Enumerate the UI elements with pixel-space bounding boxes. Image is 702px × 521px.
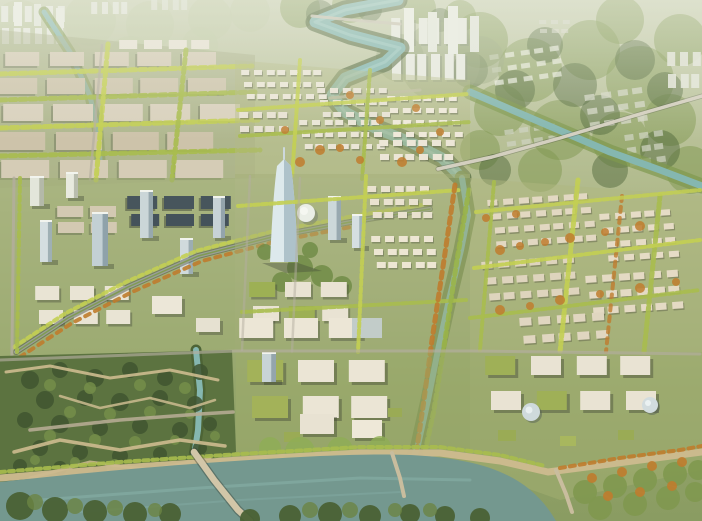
campus-east (580, 391, 610, 410)
residential-north (379, 140, 388, 146)
residential-east (550, 273, 561, 281)
autumn-trees-east (495, 305, 505, 315)
residential-east (524, 225, 534, 232)
park-trees-light (179, 382, 191, 394)
residential-east (619, 273, 630, 281)
residential-center (409, 199, 418, 205)
autumn-trees (356, 156, 364, 164)
midrise-blocks (249, 282, 275, 297)
office-tower-side (149, 190, 153, 238)
residential-north (393, 140, 402, 146)
central-green (302, 242, 318, 258)
riverbank-trees-light (302, 502, 318, 518)
residential-north (328, 144, 336, 149)
campus-center (252, 396, 288, 418)
campus-east (485, 356, 515, 375)
green-roof (388, 408, 402, 417)
office-tower-roof (140, 190, 153, 192)
tan-roofs (57, 206, 83, 217)
residential-east (489, 293, 500, 301)
far-buildings (641, 145, 651, 152)
riverbank-trees-light (148, 503, 162, 517)
green-roof (618, 430, 634, 440)
residential-north (419, 154, 428, 160)
residential-center (406, 186, 415, 192)
residential-east (537, 289, 548, 297)
riverbank-trees-light (67, 498, 83, 514)
residential-center (413, 249, 422, 255)
campus-center (351, 396, 387, 418)
riverbank-autumn-east (677, 457, 687, 467)
residential-center (373, 212, 382, 218)
riverbank-autumn-east (587, 473, 597, 483)
residential-north (405, 154, 414, 160)
autumn-trees-east (635, 283, 645, 293)
residential-east (631, 211, 641, 218)
autumn-trees (416, 146, 424, 154)
office-tower-side (48, 220, 52, 262)
riverbank-trees-light (423, 503, 437, 517)
office-tower-side (103, 212, 108, 266)
residential-center (367, 186, 376, 192)
glass-tower-side (271, 352, 276, 382)
residential-center (423, 199, 432, 205)
campus-center (349, 360, 385, 382)
campus-center (298, 360, 334, 382)
green-roof (498, 430, 516, 441)
campus-east (577, 356, 607, 375)
warehouse-row (175, 160, 223, 178)
midrise-blocks (321, 282, 347, 297)
autumn-trees-east (495, 245, 505, 255)
residential-center (384, 212, 393, 218)
residential-east (633, 272, 644, 280)
riverbank-trees-light (342, 502, 358, 518)
residential-east (502, 276, 513, 284)
residential-north (351, 144, 359, 149)
autumn-trees-east (555, 295, 565, 305)
residential-east (519, 197, 529, 204)
residential-east (672, 301, 683, 309)
green-roof (560, 436, 576, 446)
riverbank-autumn-east (603, 491, 613, 501)
residential-east (520, 211, 530, 218)
office-tower-side (337, 196, 341, 240)
park-trees-dark (21, 371, 39, 389)
residential-center (384, 199, 393, 205)
residential-east (503, 292, 514, 300)
autumn-trees-east (526, 302, 534, 310)
park-trees-dark (17, 412, 33, 428)
residential-north (432, 140, 441, 146)
autumn-trees-east (541, 238, 549, 246)
tan-roofs (58, 222, 84, 233)
cylinder-highlight (526, 407, 533, 414)
autumn-trees-east (601, 228, 609, 236)
residential-east (553, 223, 563, 230)
residential-east (532, 196, 542, 203)
residential-center (410, 236, 419, 242)
residential-center (388, 262, 397, 268)
residential-center (395, 199, 404, 205)
campus-east (620, 356, 650, 375)
residential-center (402, 262, 411, 268)
office-tower-roof (352, 214, 363, 216)
residential-east (523, 335, 536, 344)
residential-east (577, 331, 590, 340)
atmospheric-haze (0, 0, 702, 140)
autumn-trees-east (635, 221, 645, 231)
office-slabs-west (70, 286, 94, 300)
residential-center (412, 212, 421, 218)
park-trees-light (104, 408, 116, 420)
residential-east (548, 195, 558, 202)
residential-east (516, 275, 527, 283)
residential-center (395, 186, 404, 192)
residential-center (377, 262, 386, 268)
residential-east (669, 251, 679, 258)
warehouse-row (119, 160, 167, 178)
residential-center (381, 186, 390, 192)
residential-north (380, 154, 389, 160)
residential-center (399, 249, 408, 255)
office-tower-roof (66, 172, 78, 174)
autumn-trees-east (512, 210, 520, 218)
park-trees-light (134, 379, 146, 391)
residential-center (424, 236, 433, 242)
masterplan-aerial-rendering (0, 0, 702, 521)
far-buildings (654, 143, 664, 150)
riverbank-autumn-east (647, 461, 657, 471)
residential-center (399, 236, 408, 242)
residential-east (667, 270, 678, 278)
residential-center (427, 249, 436, 255)
office-tower-side (221, 196, 225, 238)
residential-north (446, 140, 455, 146)
residential-east (655, 302, 666, 310)
residential-east (540, 224, 550, 231)
autumn-trees (336, 144, 344, 152)
glass-slab (352, 318, 382, 338)
autumn-trees-east (516, 242, 524, 250)
residential-center (416, 262, 425, 268)
residential-north (305, 144, 313, 149)
residential-east (644, 210, 654, 217)
residential-east (620, 289, 631, 297)
residential-east (640, 253, 650, 260)
cylinder-highlight (645, 400, 651, 406)
residential-east (495, 227, 505, 234)
residential-north (418, 140, 427, 146)
residential-east (564, 194, 574, 201)
office-tower-roof (213, 196, 225, 198)
autumn-trees (315, 145, 325, 155)
riverbank-autumn-east (617, 467, 627, 477)
autumn-trees (397, 157, 407, 167)
office-slab (152, 296, 182, 314)
riverbank-autumn-east (635, 487, 645, 497)
park-trees-light (44, 379, 56, 391)
park-trees-dark (51, 415, 69, 433)
residential-east (585, 221, 595, 228)
office-tower-side (74, 172, 78, 198)
riverbank-trees-light (27, 494, 43, 510)
residential-east (503, 198, 513, 205)
park-trees-light (64, 406, 76, 418)
residential-center (388, 249, 397, 255)
residential-north (407, 140, 416, 146)
residential-east (573, 313, 586, 322)
residential-east (520, 291, 531, 299)
dome-highlight (300, 207, 308, 215)
warehouse-row (1, 160, 49, 178)
office-tower-roof (30, 176, 44, 178)
residential-north (444, 154, 453, 160)
residential-east (519, 317, 532, 326)
office-tower-roof (40, 220, 52, 222)
campus-slab (352, 420, 382, 438)
riverbank-autumn-east (667, 481, 677, 491)
residential-east (508, 226, 518, 233)
residential-east (551, 288, 562, 296)
residential-center (385, 236, 394, 242)
residential-east (636, 239, 646, 246)
residential-east (592, 312, 605, 321)
campus-slab (300, 414, 334, 434)
residential-east (620, 240, 630, 247)
midrise-blocks (285, 282, 311, 297)
campus-east (537, 391, 567, 410)
campus-east (531, 356, 561, 375)
park-trees-light (30, 455, 40, 465)
residential-east (586, 235, 596, 242)
autumn-trees-east (672, 278, 680, 286)
residential-east (624, 305, 635, 313)
riverbank-trees-east (656, 486, 680, 510)
office-slabs-west (106, 310, 130, 324)
residential-east (533, 274, 544, 282)
residential-east (568, 287, 579, 295)
residential-east (624, 254, 634, 261)
office-tower-roof (92, 212, 108, 214)
autumn-trees (295, 157, 305, 167)
residential-center (370, 199, 379, 205)
dark-roofs (164, 196, 194, 209)
residential-east (542, 334, 555, 343)
residential-center (371, 236, 380, 242)
office-slab (196, 318, 220, 332)
residential-center (423, 212, 432, 218)
residential-east (536, 210, 546, 217)
residential-east (599, 213, 609, 220)
residential-east (664, 223, 674, 230)
residential-east (528, 239, 538, 246)
residential-north (433, 154, 442, 160)
riverbank-trees-light (388, 503, 402, 517)
riverbank-trees-light (107, 500, 123, 516)
office-slabs-west (35, 286, 59, 300)
residential-center (398, 212, 407, 218)
park-trees-dark (203, 417, 217, 431)
park-trees-light (210, 431, 220, 441)
residential-east (585, 275, 596, 283)
office-tower-roof (180, 238, 193, 240)
residential-east (538, 316, 551, 325)
dark-roofs (166, 214, 194, 226)
residential-center (374, 249, 383, 255)
office-slabs-center (284, 318, 318, 338)
residential-east (581, 207, 591, 214)
residential-east (552, 209, 562, 216)
residential-center (427, 262, 436, 268)
park-trees-light (84, 382, 96, 394)
autumn-trees-east (565, 233, 575, 243)
campus-east (491, 391, 521, 410)
autumn-trees-east (596, 290, 604, 298)
residential-east (660, 209, 670, 216)
office-tower-side (39, 176, 44, 206)
park-trees-dark (36, 391, 54, 409)
autumn-trees-east (482, 214, 490, 222)
rendering-canvas (0, 0, 702, 521)
